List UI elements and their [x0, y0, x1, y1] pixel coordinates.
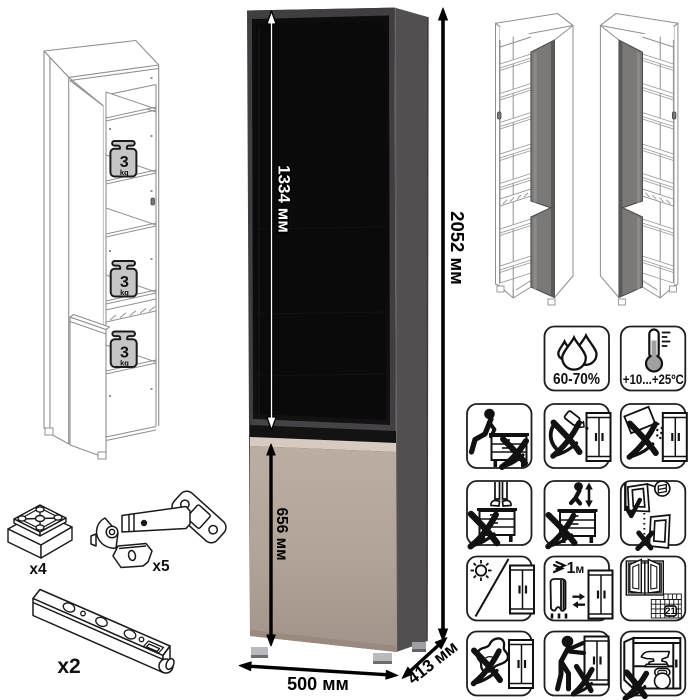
svg-text:2052 мм: 2052 мм: [447, 211, 468, 285]
svg-text:x2: x2: [57, 655, 80, 678]
svg-text:x5: x5: [152, 558, 170, 575]
svg-text:500 мм: 500 мм: [287, 674, 349, 694]
svg-text:1м: 1м: [567, 560, 585, 577]
svg-text:60-70%: 60-70%: [553, 371, 600, 388]
svg-text:656 мм: 656 мм: [273, 507, 290, 560]
svg-text:21: 21: [665, 606, 676, 617]
svg-text:x4: x4: [29, 561, 47, 578]
svg-text:+10...+25ºC: +10...+25ºC: [623, 372, 684, 387]
svg-text:1334 мм: 1334 мм: [275, 165, 294, 233]
